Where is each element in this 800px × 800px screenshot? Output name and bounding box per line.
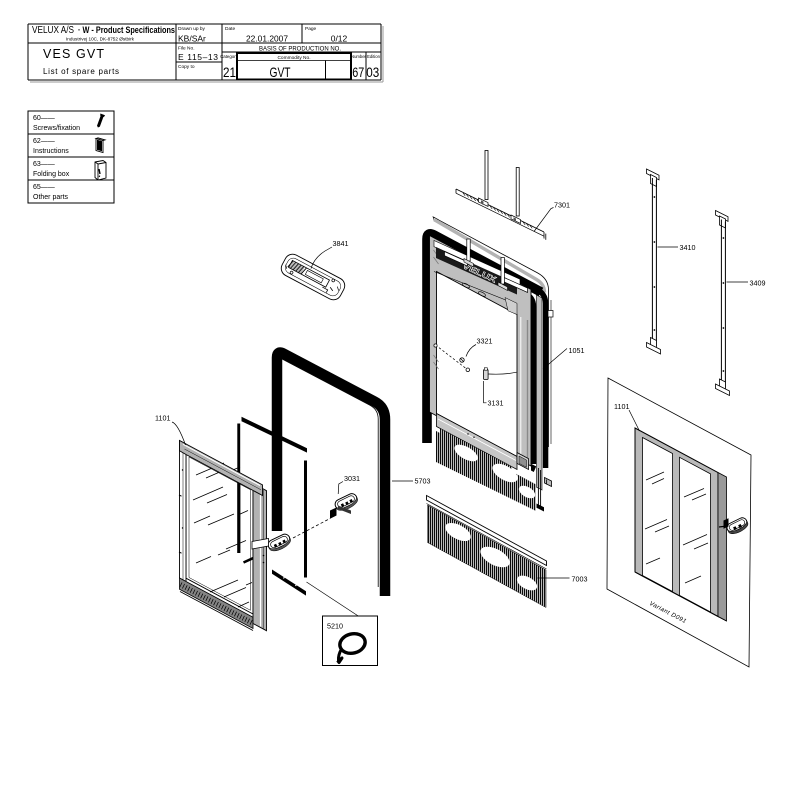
svg-text:1101: 1101: [155, 414, 170, 423]
svg-text:7301: 7301: [554, 201, 570, 210]
svg-text:3131: 3131: [488, 399, 504, 408]
svg-text:1101: 1101: [614, 402, 629, 411]
svg-text:Folding box: Folding box: [33, 171, 70, 178]
svg-text:Industrivej 10C, DK-8752 Østbi: Industrivej 10C, DK-8752 Østbirk: [66, 37, 135, 42]
svg-text:Screws/fixation: Screws/fixation: [33, 125, 80, 132]
svg-text:Category: Category: [220, 54, 239, 59]
svg-text:List of spare parts: List of spare parts: [43, 67, 119, 76]
svg-text:VES GVT: VES GVT: [43, 47, 104, 61]
svg-text:67: 67: [352, 65, 364, 80]
svg-text:GVT: GVT: [270, 64, 291, 80]
svg-text:Drawn up by: Drawn up by: [178, 26, 206, 32]
svg-text:Copy to: Copy to: [178, 64, 195, 70]
svg-text:BASIS OF PRODUCTION NO.: BASIS OF PRODUCTION NO.: [259, 47, 341, 53]
svg-text:3031: 3031: [344, 474, 360, 483]
svg-text:Edition: Edition: [367, 54, 380, 59]
svg-text:65——: 65——: [33, 184, 55, 191]
svg-text:7003: 7003: [572, 575, 588, 584]
svg-text:Number: Number: [351, 54, 366, 59]
svg-text:3409: 3409: [750, 279, 766, 288]
svg-text:5703: 5703: [415, 477, 431, 486]
svg-text:22.01.2007: 22.01.2007: [246, 34, 288, 44]
svg-text:Commodity No.: Commodity No.: [277, 55, 310, 61]
svg-text:0/12: 0/12: [331, 34, 348, 44]
svg-text:21: 21: [223, 64, 236, 80]
svg-text:1051: 1051: [569, 346, 585, 355]
svg-text:63——: 63——: [33, 161, 55, 168]
svg-text:Instructions: Instructions: [33, 148, 69, 155]
svg-text:· W - Product Specifications: · W - Product Specifications: [78, 25, 175, 35]
svg-text:3410: 3410: [680, 243, 696, 252]
svg-text:File No.: File No.: [178, 46, 195, 52]
svg-text:3321: 3321: [477, 337, 493, 346]
svg-text:Date: Date: [225, 26, 235, 32]
svg-text:Page: Page: [305, 26, 317, 32]
svg-text:VELUX A/S: VELUX A/S: [32, 24, 74, 36]
svg-text:KB/SAr: KB/SAr: [178, 34, 206, 44]
svg-text:E 115–13: E 115–13: [178, 52, 218, 62]
svg-text:03: 03: [366, 65, 379, 80]
svg-text:62——: 62——: [33, 138, 55, 145]
svg-text:60——: 60——: [33, 115, 55, 122]
svg-text:Other parts: Other parts: [33, 194, 69, 201]
svg-text:5210: 5210: [327, 622, 343, 631]
svg-text:3841: 3841: [333, 239, 349, 248]
